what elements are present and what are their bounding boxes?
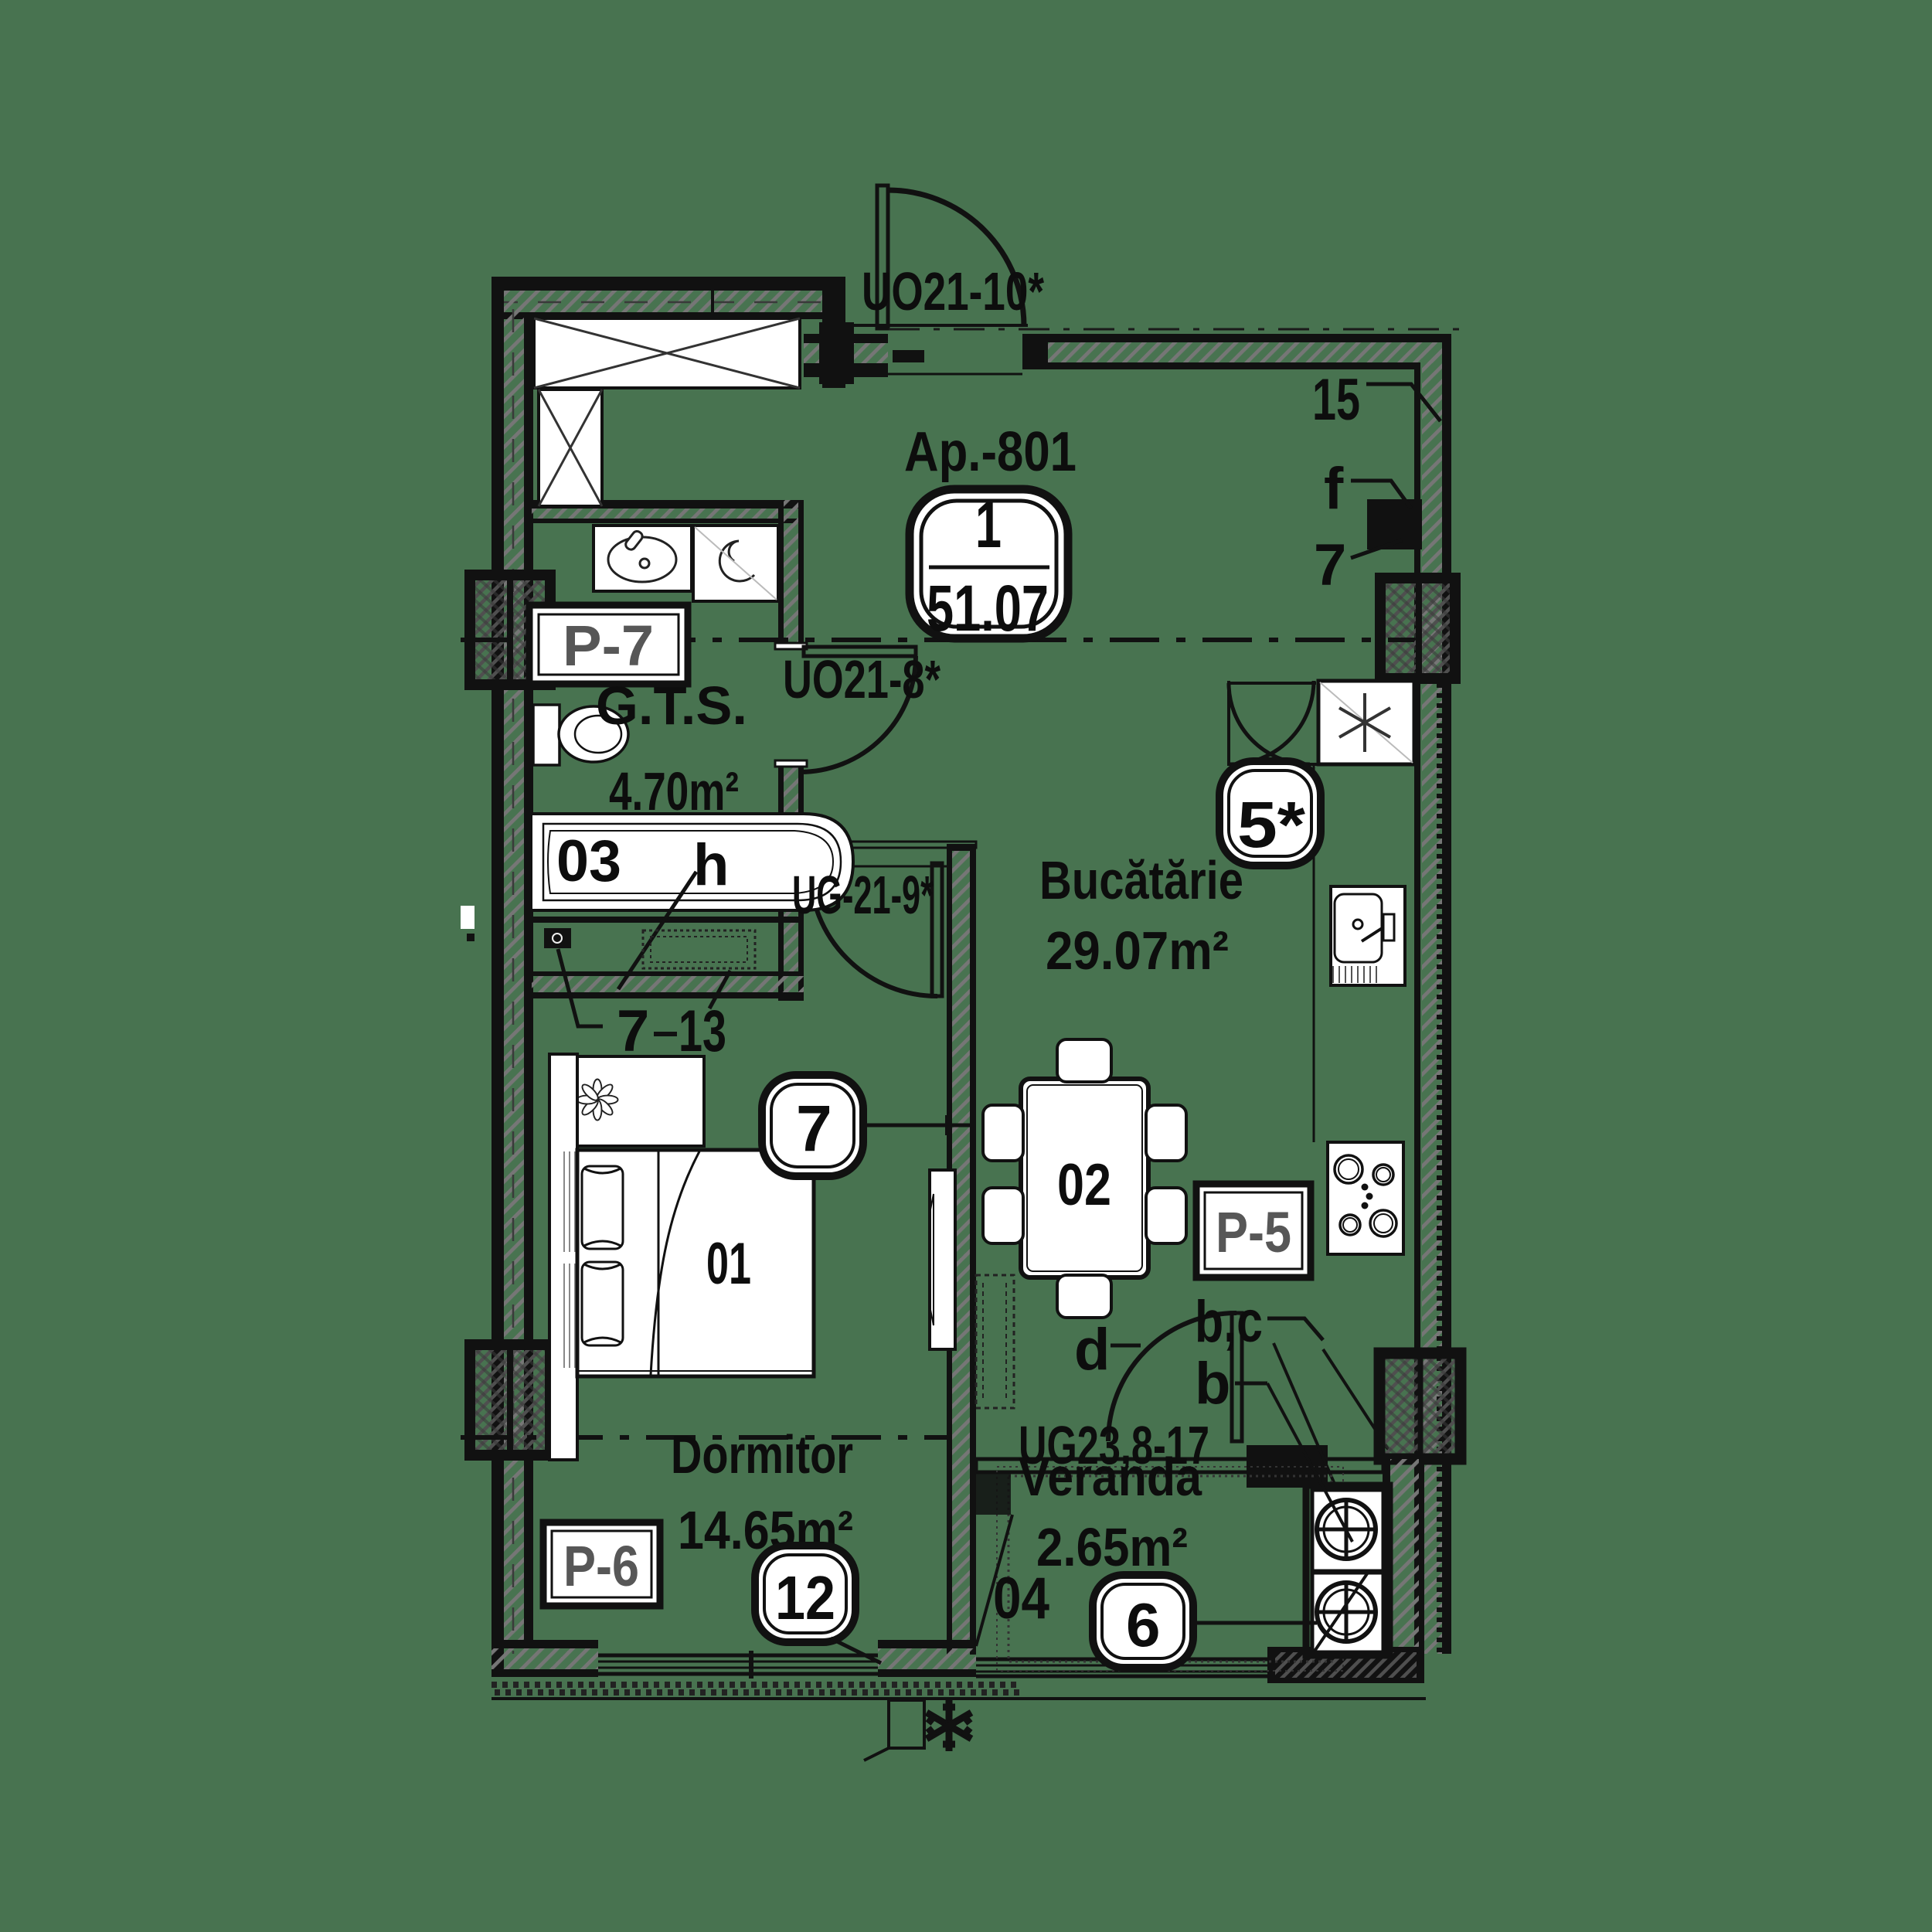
svg-text:UO21-8*: UO21-8*: [783, 649, 941, 709]
svg-text:d: d: [1074, 1317, 1110, 1383]
svg-text:Dormitor: Dormitor: [671, 1424, 853, 1485]
svg-text:Veranda: Veranda: [1019, 1447, 1202, 1507]
svg-text:6: 6: [1126, 1590, 1161, 1659]
svg-text:2.65m²: 2.65m²: [1036, 1517, 1188, 1577]
svg-text:P-7: P-7: [563, 614, 654, 678]
svg-text:12: 12: [775, 1563, 835, 1632]
svg-text:03: 03: [556, 828, 621, 894]
svg-text:h: h: [693, 832, 729, 898]
svg-text:29.07m²: 29.07m²: [1046, 920, 1229, 981]
svg-text:b: b: [1195, 1351, 1230, 1417]
svg-text:f: f: [1324, 456, 1344, 522]
svg-text:1: 1: [975, 488, 1002, 561]
svg-text:51.07: 51.07: [927, 572, 1049, 645]
svg-text:5*: 5*: [1237, 788, 1305, 861]
svg-text:15: 15: [1312, 367, 1360, 433]
svg-text:7: 7: [617, 998, 649, 1064]
svg-text:UO21-10*: UO21-10*: [862, 261, 1045, 321]
svg-text:P-6: P-6: [563, 1534, 639, 1598]
svg-text:UG-21-9*: UG-21-9*: [792, 865, 934, 925]
svg-text:7: 7: [1314, 532, 1346, 598]
svg-text:4.70m²: 4.70m²: [609, 761, 739, 821]
svg-text:01: 01: [706, 1231, 751, 1297]
svg-text:G.T.S.: G.T.S.: [596, 675, 747, 736]
svg-text:P-5: P-5: [1216, 1200, 1291, 1264]
svg-text:13: 13: [679, 998, 726, 1064]
svg-text:Bucătărie: Bucătărie: [1039, 850, 1243, 910]
svg-text:02: 02: [1057, 1152, 1111, 1218]
svg-text:7: 7: [796, 1092, 832, 1165]
svg-text:Ap.-801: Ap.-801: [904, 421, 1077, 483]
svg-text:b,c: b,c: [1195, 1289, 1263, 1355]
svg-text:04: 04: [993, 1566, 1049, 1631]
